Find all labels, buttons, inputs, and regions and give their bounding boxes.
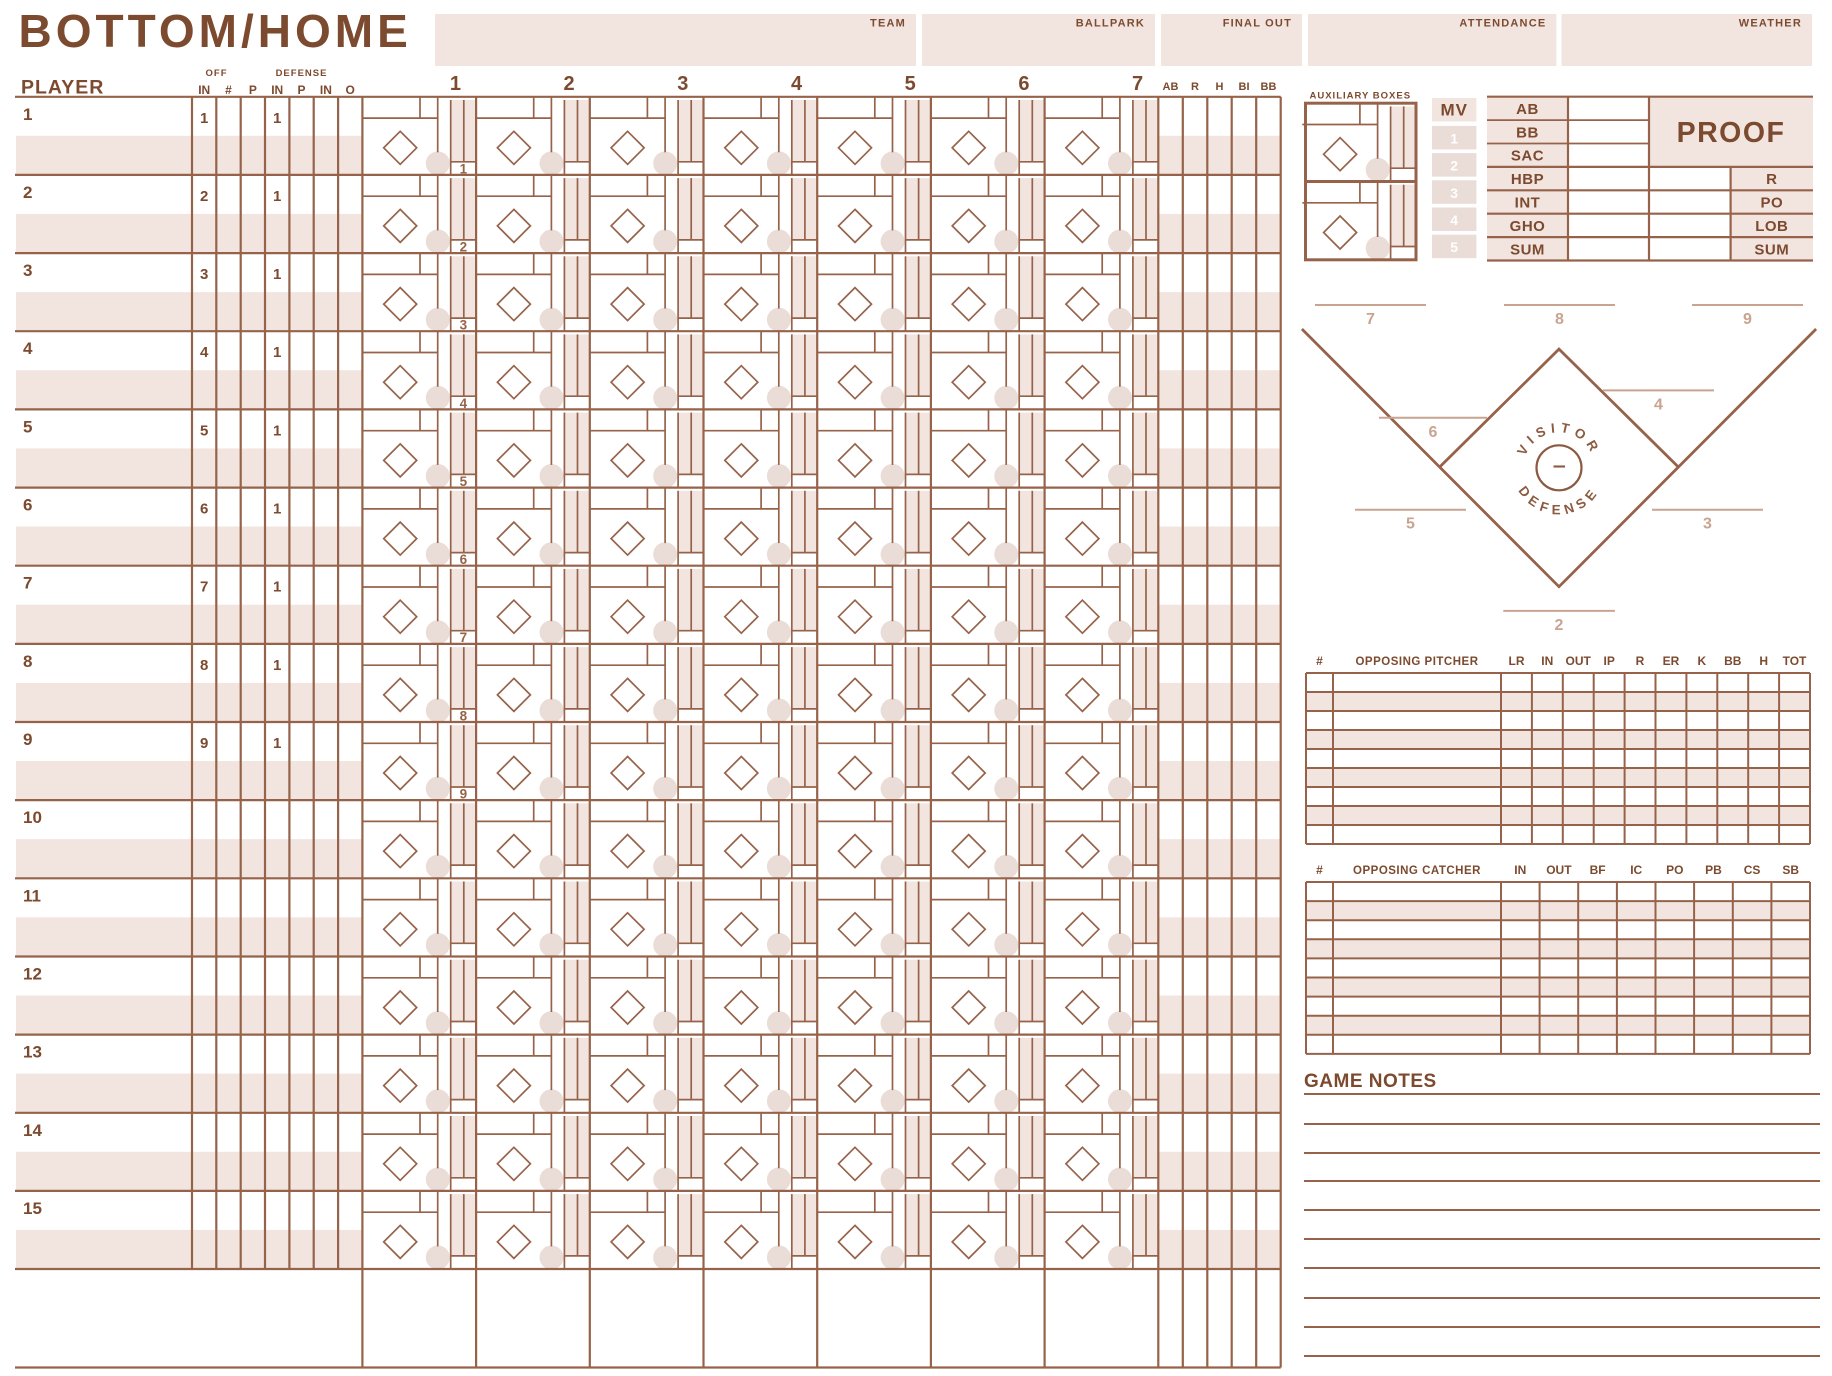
svg-text:INT: INT bbox=[1515, 195, 1541, 212]
svg-text:LR: LR bbox=[1509, 654, 1525, 668]
svg-text:IN: IN bbox=[320, 83, 332, 97]
svg-text:AB: AB bbox=[1163, 81, 1179, 93]
svg-text:1: 1 bbox=[273, 657, 281, 674]
svg-text:DEFENSE: DEFENSE bbox=[276, 68, 328, 79]
svg-text:7: 7 bbox=[1132, 73, 1143, 95]
svg-text:SUM: SUM bbox=[1510, 241, 1545, 258]
svg-text:3: 3 bbox=[1450, 185, 1458, 201]
svg-text:4: 4 bbox=[1654, 396, 1663, 413]
svg-text:7: 7 bbox=[200, 579, 208, 596]
svg-text:LOB: LOB bbox=[1755, 218, 1788, 235]
svg-text:3: 3 bbox=[1703, 516, 1712, 533]
svg-text:1: 1 bbox=[450, 73, 461, 95]
svg-text:1: 1 bbox=[273, 344, 281, 361]
svg-text:WEATHER: WEATHER bbox=[1739, 18, 1802, 30]
svg-text:MV: MV bbox=[1440, 101, 1468, 120]
svg-text:5: 5 bbox=[23, 417, 32, 436]
svg-text:H: H bbox=[1216, 81, 1224, 93]
svg-text:K: K bbox=[1697, 654, 1706, 668]
svg-text:1: 1 bbox=[273, 110, 281, 127]
svg-text:4: 4 bbox=[200, 344, 209, 361]
svg-text:R: R bbox=[1636, 654, 1645, 668]
svg-text:5: 5 bbox=[1406, 516, 1415, 533]
svg-text:8: 8 bbox=[23, 652, 32, 671]
svg-text:7: 7 bbox=[23, 574, 32, 593]
svg-text:TOT: TOT bbox=[1783, 654, 1807, 668]
svg-text:12: 12 bbox=[23, 965, 42, 984]
svg-text:9: 9 bbox=[1743, 311, 1752, 328]
svg-text:TEAM: TEAM bbox=[870, 18, 906, 30]
svg-text:P: P bbox=[297, 83, 305, 97]
svg-text:O: O bbox=[346, 83, 355, 97]
svg-text:1: 1 bbox=[273, 266, 281, 283]
svg-text:13: 13 bbox=[23, 1043, 42, 1062]
svg-text:1: 1 bbox=[273, 422, 281, 439]
svg-text:IN: IN bbox=[271, 83, 283, 97]
svg-text:2: 2 bbox=[200, 188, 208, 205]
svg-text:IP: IP bbox=[1604, 654, 1615, 668]
svg-text:2: 2 bbox=[1555, 617, 1564, 634]
svg-text:1: 1 bbox=[273, 188, 281, 205]
svg-text:BOTTOM/HOME: BOTTOM/HOME bbox=[19, 5, 412, 57]
svg-text:#: # bbox=[225, 83, 232, 97]
svg-text:ATTENDANCE: ATTENDANCE bbox=[1459, 18, 1546, 30]
svg-text:2: 2 bbox=[564, 73, 575, 95]
svg-text:11: 11 bbox=[23, 886, 41, 905]
svg-text:6: 6 bbox=[200, 501, 208, 518]
svg-text:PO: PO bbox=[1760, 195, 1783, 212]
svg-text:OPPOSING CATCHER: OPPOSING CATCHER bbox=[1353, 865, 1481, 877]
svg-text:1: 1 bbox=[273, 501, 281, 518]
svg-text:IN: IN bbox=[1541, 654, 1553, 668]
svg-text:2: 2 bbox=[1450, 158, 1458, 174]
svg-text:9: 9 bbox=[200, 735, 208, 752]
svg-text:1: 1 bbox=[273, 579, 281, 596]
svg-text:3: 3 bbox=[677, 73, 688, 95]
svg-text:3: 3 bbox=[23, 261, 32, 280]
svg-text:BI: BI bbox=[1239, 81, 1250, 93]
svg-text:AUXILIARY BOXES: AUXILIARY BOXES bbox=[1310, 91, 1412, 102]
svg-text:5: 5 bbox=[905, 73, 916, 95]
svg-text:OUT: OUT bbox=[1546, 863, 1572, 877]
svg-text:4: 4 bbox=[791, 73, 803, 95]
svg-text:HBP: HBP bbox=[1511, 171, 1544, 188]
svg-text:FINAL OUT: FINAL OUT bbox=[1223, 18, 1292, 30]
svg-text:IN: IN bbox=[198, 83, 210, 97]
svg-text:R: R bbox=[1766, 171, 1777, 188]
svg-text:SAC: SAC bbox=[1511, 148, 1544, 165]
svg-text:4: 4 bbox=[23, 339, 33, 358]
svg-text:3: 3 bbox=[200, 266, 208, 283]
svg-text:7: 7 bbox=[1366, 311, 1375, 328]
svg-text:CS: CS bbox=[1744, 863, 1761, 877]
svg-text:#: # bbox=[1316, 863, 1323, 877]
svg-text:OPPOSING PITCHER: OPPOSING PITCHER bbox=[1355, 656, 1478, 668]
svg-text:8: 8 bbox=[1555, 311, 1564, 328]
svg-text:15: 15 bbox=[23, 1199, 42, 1218]
svg-text:PO: PO bbox=[1666, 863, 1683, 877]
svg-text:BALLPARK: BALLPARK bbox=[1076, 18, 1145, 30]
svg-text:#: # bbox=[1316, 654, 1323, 668]
svg-text:8: 8 bbox=[200, 657, 208, 674]
svg-text:IN: IN bbox=[1514, 863, 1526, 877]
svg-text:10: 10 bbox=[23, 808, 42, 827]
svg-text:6: 6 bbox=[23, 496, 32, 515]
svg-text:1: 1 bbox=[200, 110, 208, 127]
svg-text:9: 9 bbox=[23, 730, 32, 749]
svg-text:GAME NOTES: GAME NOTES bbox=[1304, 1071, 1437, 1092]
svg-text:BB: BB bbox=[1724, 654, 1742, 668]
svg-text:4: 4 bbox=[1450, 212, 1458, 228]
svg-text:SB: SB bbox=[1782, 863, 1799, 877]
svg-text:P: P bbox=[249, 83, 257, 97]
svg-text:6: 6 bbox=[1018, 73, 1029, 95]
svg-text:BB: BB bbox=[1261, 81, 1277, 93]
svg-text:GHO: GHO bbox=[1510, 218, 1546, 235]
svg-text:BB: BB bbox=[1516, 124, 1539, 141]
svg-text:IC: IC bbox=[1630, 863, 1642, 877]
svg-text:PB: PB bbox=[1705, 863, 1722, 877]
svg-text:ER: ER bbox=[1663, 654, 1680, 668]
svg-text:SUM: SUM bbox=[1754, 241, 1789, 258]
svg-text:5: 5 bbox=[200, 422, 208, 439]
svg-text:OUT: OUT bbox=[1566, 654, 1592, 668]
svg-text:OFF: OFF bbox=[206, 68, 228, 79]
svg-text:1: 1 bbox=[273, 735, 281, 752]
svg-text:2: 2 bbox=[23, 183, 32, 202]
svg-text:14: 14 bbox=[23, 1121, 42, 1140]
svg-text:6: 6 bbox=[1429, 424, 1438, 441]
svg-text:BF: BF bbox=[1590, 863, 1606, 877]
svg-text:R: R bbox=[1191, 81, 1199, 93]
svg-text:1: 1 bbox=[1450, 130, 1458, 146]
svg-text:PLAYER: PLAYER bbox=[21, 77, 104, 99]
svg-text:PROOF: PROOF bbox=[1677, 117, 1786, 149]
svg-text:5: 5 bbox=[1450, 239, 1458, 255]
svg-text:H: H bbox=[1759, 654, 1768, 668]
svg-text:1: 1 bbox=[23, 105, 32, 124]
svg-text:AB: AB bbox=[1516, 101, 1539, 118]
